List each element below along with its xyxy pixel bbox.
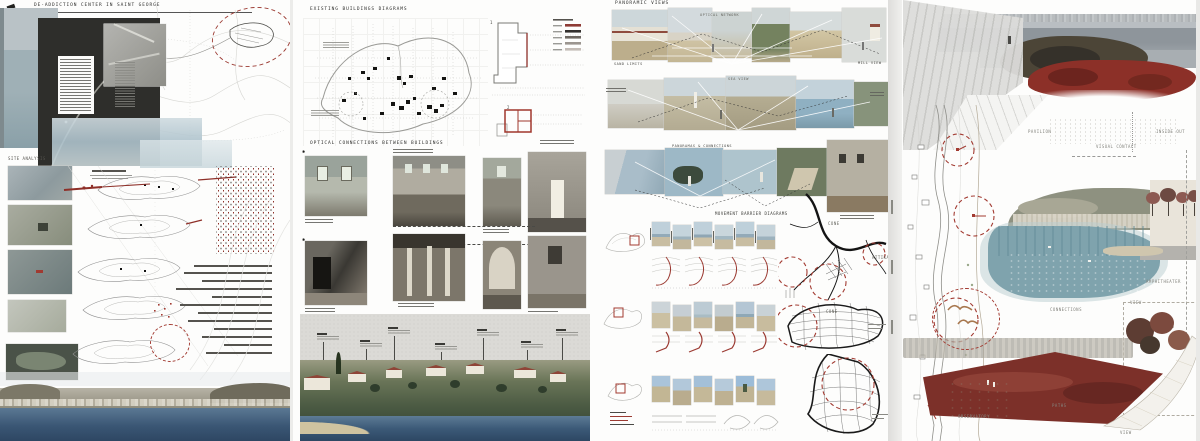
- minimap-svg: [600, 300, 646, 334]
- view-thumbnail: [736, 222, 754, 246]
- view-thumbnail: [694, 222, 712, 246]
- window: [497, 166, 506, 177]
- minimap-svg: [604, 374, 646, 406]
- red-dark-patch: [1048, 68, 1098, 86]
- label-skeleton: [872, 418, 884, 419]
- person-silhouette: [688, 176, 691, 186]
- pavilion-label: PAVILION: [1028, 130, 1051, 134]
- view-thumbnail: [757, 305, 775, 331]
- view-bottom-label: VIEW: [1120, 431, 1132, 435]
- ink-diagram-svg: [778, 186, 888, 302]
- sea-view-label: SEA VIEW: [728, 78, 749, 82]
- bright-door: [551, 180, 564, 218]
- scatter-dots: [948, 380, 1008, 420]
- sections-sketch-svg: [650, 252, 780, 294]
- thumbnail-dark-spot: [38, 223, 48, 231]
- marker-icon: ✱: [302, 150, 306, 155]
- panel-panoramic-views: PANORAMIC VIEWS OPTICAL NETWORK SAND LIM…: [600, 0, 888, 441]
- ruin-photo-1: [305, 156, 367, 216]
- tree: [450, 380, 460, 388]
- view-thumbnail: [694, 302, 712, 328]
- vertical-caption: [713, 231, 714, 243]
- inset-road: [113, 23, 154, 43]
- boat: [1048, 246, 1051, 248]
- tree-trunk: [1152, 204, 1153, 216]
- rotated-caption: [891, 320, 893, 334]
- attika-label: ATTIKA: [872, 256, 889, 260]
- arch: [489, 247, 515, 289]
- house: [550, 374, 566, 382]
- coast-buildings-band: [0, 399, 293, 406]
- label-skeleton: [872, 414, 888, 415]
- view-thumbnail: [736, 376, 754, 402]
- ink-diagram-svg: [788, 354, 890, 441]
- view-thumbnail: [652, 302, 670, 328]
- description-lines: [60, 59, 91, 111]
- swirl-arcs-svg: [140, 200, 290, 380]
- presentation-board: DE-ADDICTION CENTER IN SAINT GEORGE: [0, 0, 1200, 441]
- rubble: [305, 293, 367, 305]
- mill-view-label: MILL VIEW: [858, 62, 881, 66]
- ruin-photo-7: [483, 241, 521, 309]
- tree-trunk: [1194, 203, 1195, 216]
- debris: [528, 294, 586, 308]
- amphitheater-label: AMPHITHEATER: [1146, 280, 1181, 284]
- view-thumbnail: [652, 222, 670, 246]
- tree: [538, 386, 547, 393]
- notes-column: [115, 62, 135, 108]
- view-thumbnail: [673, 305, 691, 331]
- sea-watercolor: [988, 226, 1160, 298]
- ruin-photo-6: [393, 234, 465, 301]
- movement-diagrams-title: MOVEMENT BARRIER DIAGRAMS: [715, 212, 788, 216]
- dotted-vline: [1132, 112, 1133, 152]
- curved-path-svg: [1088, 330, 1200, 441]
- ruin-photo-8: [528, 236, 586, 308]
- perspective-overlay-svg: [612, 8, 886, 66]
- paths-label: PATHS: [1052, 404, 1067, 408]
- beach-arc: [300, 420, 380, 434]
- floor: [483, 295, 521, 309]
- sections-sketch-svg: [650, 330, 780, 356]
- tree: [1160, 188, 1176, 202]
- floor-shadow: [528, 218, 586, 232]
- plan-number-1: 1: [490, 21, 493, 25]
- ruin-photo-5: [305, 241, 367, 305]
- optical-connections-label: OPTICAL CONNECTIONS BETWEEN BUILDINGS: [310, 142, 444, 147]
- person-silhouette: [760, 172, 763, 182]
- right-edge-strip: [1196, 0, 1200, 441]
- view-thumbnail: [757, 225, 775, 249]
- red-dark-patch: [1128, 74, 1172, 90]
- photo-caption: [305, 219, 333, 224]
- house: [466, 366, 484, 374]
- floorplans-svg: [485, 18, 590, 142]
- aerial-photo-pale-edge: [0, 8, 4, 148]
- column: [445, 248, 450, 296]
- sea-sparkles: [1008, 252, 1148, 292]
- panel-3-title: PANORAMIC VIEWS: [615, 2, 669, 7]
- cone-label: CONE: [826, 310, 838, 314]
- tree-spec: [743, 384, 747, 392]
- tree-trunk: [1168, 202, 1169, 216]
- window: [441, 164, 448, 173]
- cypress-tree: [336, 352, 341, 374]
- panel-1-edge: [290, 0, 293, 441]
- house: [348, 374, 366, 382]
- ruin-photo-3: [483, 158, 521, 226]
- house: [386, 370, 402, 378]
- label-skeleton: [868, 328, 882, 329]
- person-silhouette: [712, 44, 714, 52]
- cone-label: CONE: [828, 222, 840, 226]
- window: [423, 164, 430, 173]
- person-silhouette: [720, 110, 722, 119]
- window: [548, 246, 562, 264]
- panel-existing-buildings: EXISTING BUILDINGS DIAGRAMS: [300, 0, 590, 441]
- strip-caption: [606, 88, 626, 93]
- description-box: [58, 56, 94, 114]
- rotated-caption: [891, 200, 893, 214]
- house: [426, 368, 446, 376]
- perspective-overlay-svg: [608, 76, 888, 132]
- optical-network-label: OPTICAL NETWORK: [700, 14, 739, 18]
- tree: [496, 384, 507, 392]
- vertical-caption: [650, 228, 651, 240]
- view-thumbnail: [736, 302, 754, 328]
- sand-limits-label: SAND LIMITS: [614, 63, 643, 67]
- view-thumbnail: [715, 305, 733, 331]
- person-silhouette: [862, 42, 864, 50]
- siteplan-svg: [303, 18, 488, 146]
- strip-caption: [870, 92, 884, 97]
- view-thumbnail: [652, 376, 670, 402]
- view-thumbnail: [673, 225, 691, 249]
- person-silhouette: [832, 108, 834, 117]
- site-analysis-label: SITE ANALYSIS: [8, 157, 46, 161]
- panel-design-renders: PAVILION INSIDE OUT VISUAL CONTACT: [888, 0, 1200, 441]
- person-silhouette: [1008, 36, 1011, 44]
- house: [514, 370, 536, 378]
- thumbnail-red-mark: [36, 270, 43, 273]
- photo-caption: [393, 149, 433, 154]
- window: [317, 166, 328, 181]
- inside-out-label: INSIDE OUT: [1156, 130, 1185, 134]
- dark-doorway: [313, 257, 331, 289]
- window: [341, 166, 352, 181]
- visual-contact-dash: [1072, 156, 1136, 157]
- birds-svg: [944, 300, 988, 334]
- siteplan-note-2: [311, 110, 339, 118]
- house: [304, 378, 330, 390]
- column: [407, 248, 412, 296]
- ruin-photo-4: [528, 152, 586, 232]
- panel-site-analysis: DE-ADDICTION CENTER IN SAINT GEORGE: [0, 0, 293, 441]
- view-thumbnail: [757, 379, 775, 405]
- column: [427, 246, 432, 296]
- tree: [370, 384, 380, 392]
- window: [405, 164, 412, 173]
- panel-2-title: EXISTING BUILDINGS DIAGRAMS: [310, 8, 407, 13]
- visual-contact-label: VISUAL CONTACT: [1096, 145, 1137, 149]
- boat: [1088, 260, 1091, 262]
- tree: [1176, 192, 1189, 203]
- vertical-caption: [671, 231, 672, 243]
- sections-sketch-svg: [650, 404, 780, 434]
- photo-caption: [305, 308, 335, 313]
- aerial-inset-gray: [104, 24, 166, 86]
- ruin-photo-2: [393, 156, 465, 226]
- view-thumbnail: [715, 379, 733, 405]
- beach-spit: [1103, 246, 1163, 256]
- siteplan-note-1: [323, 42, 349, 50]
- coast-hill-left: [0, 384, 60, 400]
- connections-label: CONNECTIONS: [1050, 308, 1082, 312]
- watercolor-strip-2: [140, 140, 232, 168]
- view-thumbnail: [673, 379, 691, 405]
- tree-trunk: [1183, 204, 1184, 216]
- vertical-caption: [692, 228, 693, 240]
- coast-sea: [0, 408, 293, 441]
- plan-number-2: 2: [507, 106, 510, 110]
- siteplan-grid: [303, 18, 488, 146]
- view-thumbnail: [715, 225, 733, 249]
- tree: [1146, 192, 1160, 204]
- vertical-caption: [755, 231, 756, 243]
- label-skeleton: [868, 324, 886, 325]
- photo-caption: [398, 303, 434, 308]
- view-thumbnail: [694, 376, 712, 402]
- plan-caption: [540, 140, 574, 145]
- minimap-svg: [602, 222, 648, 258]
- tree: [408, 382, 417, 389]
- vertical-caption: [734, 228, 735, 240]
- rotated-caption: [891, 260, 893, 274]
- ink-diagram-svg: [778, 296, 890, 356]
